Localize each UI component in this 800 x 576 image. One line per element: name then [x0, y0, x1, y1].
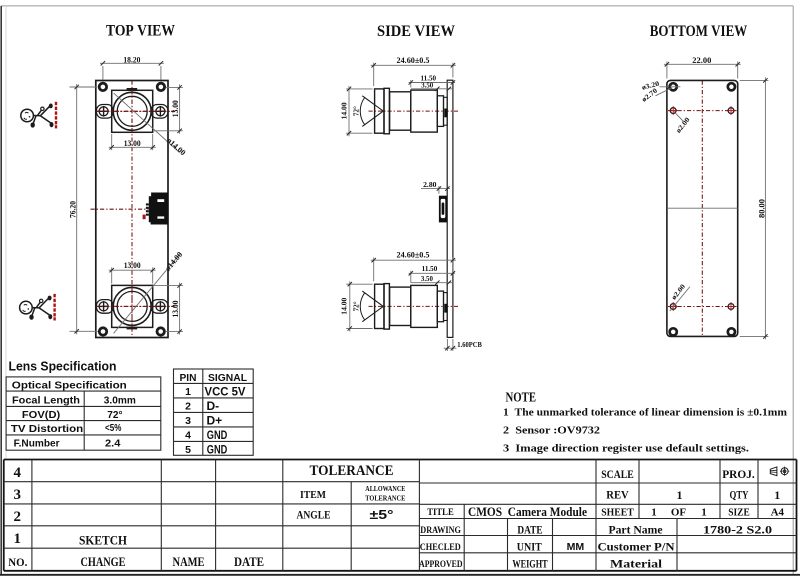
svg-text:REV: REV [606, 488, 629, 502]
svg-text:2.4: 2.4 [105, 438, 121, 449]
svg-text:13.00: 13.00 [124, 139, 141, 148]
svg-text:PROJ.: PROJ. [722, 467, 755, 481]
svg-text:Customer P/N: Customer P/N [598, 539, 675, 553]
svg-text:80.00: 80.00 [757, 199, 766, 218]
svg-text:D+: D+ [207, 414, 223, 428]
svg-text:2: 2 [14, 509, 22, 525]
svg-text:2.80: 2.80 [423, 181, 437, 189]
svg-text:WEIGHT: WEIGHT [512, 556, 547, 570]
svg-text:MM: MM [567, 541, 585, 553]
svg-text:ITEM: ITEM [300, 490, 326, 501]
svg-text:<5%: <5% [105, 423, 121, 434]
svg-text:NAME: NAME [173, 554, 205, 569]
svg-text:22.00: 22.00 [692, 56, 711, 65]
svg-text:1 The unmarked tolerance of l: 1 The unmarked tolerance of linear dimen… [503, 408, 787, 419]
svg-text:A4: A4 [771, 506, 785, 518]
svg-text:APPROVED: APPROVED [419, 559, 463, 569]
svg-text:CMOS Camera Module: CMOS Camera Module [468, 504, 587, 519]
svg-text:Part Name: Part Name [609, 522, 664, 536]
svg-text:SIZE: SIZE [728, 506, 750, 518]
svg-text:Focal Length: Focal Length [12, 396, 80, 407]
svg-text:1: 1 [701, 506, 707, 518]
svg-text:TV Distortion: TV Distortion [11, 424, 83, 435]
svg-text:GND: GND [207, 428, 228, 442]
svg-text:BOTTOM VIEW: BOTTOM VIEW [650, 23, 748, 40]
svg-text:TOLERANCE: TOLERANCE [365, 494, 405, 503]
svg-text:FOV(D): FOV(D) [22, 410, 60, 421]
svg-text:CHANGE: CHANGE [81, 554, 126, 569]
svg-text:3.50: 3.50 [421, 82, 433, 90]
svg-text:DRAWING: DRAWING [420, 525, 461, 535]
svg-text:SIDE VIEW: SIDE VIEW [377, 23, 455, 40]
svg-text:D-: D- [207, 399, 220, 413]
svg-text:24.60±0.5: 24.60±0.5 [397, 251, 430, 260]
svg-text:1: 1 [651, 506, 657, 518]
svg-text:GND: GND [207, 443, 228, 457]
svg-text:1: 1 [677, 488, 683, 502]
svg-text:SKETCH: SKETCH [79, 533, 127, 548]
svg-text:1: 1 [14, 531, 22, 547]
svg-text:4: 4 [185, 430, 191, 442]
svg-text:Lens Specification: Lens Specification [9, 360, 117, 374]
svg-text:CHECLED: CHECLED [420, 542, 461, 552]
svg-text:F.Number: F.Number [14, 438, 60, 449]
svg-text:13.00: 13.00 [171, 301, 180, 318]
svg-text:NO.: NO. [8, 555, 27, 569]
svg-text:24.60±0.5: 24.60±0.5 [397, 56, 430, 65]
svg-text:76.20: 76.20 [69, 201, 78, 218]
svg-text:TOP VIEW: TOP VIEW [106, 23, 175, 40]
svg-text:5: 5 [185, 444, 191, 456]
svg-text:ANGLE: ANGLE [297, 509, 331, 521]
svg-text:14.00: 14.00 [341, 297, 349, 315]
svg-text:3: 3 [185, 415, 191, 427]
svg-text:4: 4 [14, 465, 22, 481]
svg-text:3.0mm: 3.0mm [104, 396, 136, 407]
svg-text:UNIT: UNIT [517, 539, 542, 553]
svg-text:3: 3 [14, 487, 22, 503]
svg-text:QTY: QTY [730, 488, 749, 502]
svg-text:Material: Material [610, 556, 663, 570]
svg-text:3 Image direction register us: 3 Image direction register use default s… [503, 444, 749, 455]
svg-text:14.00: 14.00 [340, 102, 348, 120]
svg-text:1: 1 [185, 386, 191, 398]
svg-text:18.20: 18.20 [123, 56, 140, 65]
svg-text:SIGNAL: SIGNAL [208, 372, 248, 384]
svg-text:13.00: 13.00 [171, 100, 180, 117]
svg-text:PIN: PIN [180, 372, 197, 384]
svg-text:Optical Specification: Optical Specification [12, 380, 127, 391]
svg-text:72°: 72° [352, 106, 360, 116]
svg-text:±5°: ±5° [370, 508, 394, 522]
svg-text:2: 2 [185, 401, 191, 413]
svg-text:72°: 72° [107, 410, 122, 421]
svg-text:SCALE: SCALE [601, 467, 634, 481]
svg-text:2 Sensor :OV9732: 2 Sensor :OV9732 [503, 426, 600, 437]
svg-text:11.50: 11.50 [422, 265, 438, 273]
svg-text:DATE: DATE [517, 522, 542, 536]
svg-text:1: 1 [774, 488, 780, 502]
svg-text:13.00: 13.00 [124, 261, 141, 270]
svg-text:DATE: DATE [234, 554, 264, 569]
svg-text:TITLE: TITLE [427, 508, 454, 518]
svg-text:72°: 72° [352, 301, 360, 311]
svg-text:1780-2 S2.0: 1780-2 S2.0 [703, 522, 772, 536]
svg-text:TOLERANCE: TOLERANCE [310, 463, 394, 479]
svg-text:NOTE: NOTE [506, 391, 537, 406]
svg-text:1.60PCB: 1.60PCB [457, 341, 482, 349]
svg-text:OF: OF [671, 506, 687, 518]
svg-text:ALLOWANCE: ALLOWANCE [365, 484, 405, 493]
svg-text:3.50: 3.50 [421, 275, 433, 283]
svg-text:SHEET: SHEET [601, 506, 634, 518]
svg-text:VCC 5V: VCC 5V [205, 384, 246, 398]
